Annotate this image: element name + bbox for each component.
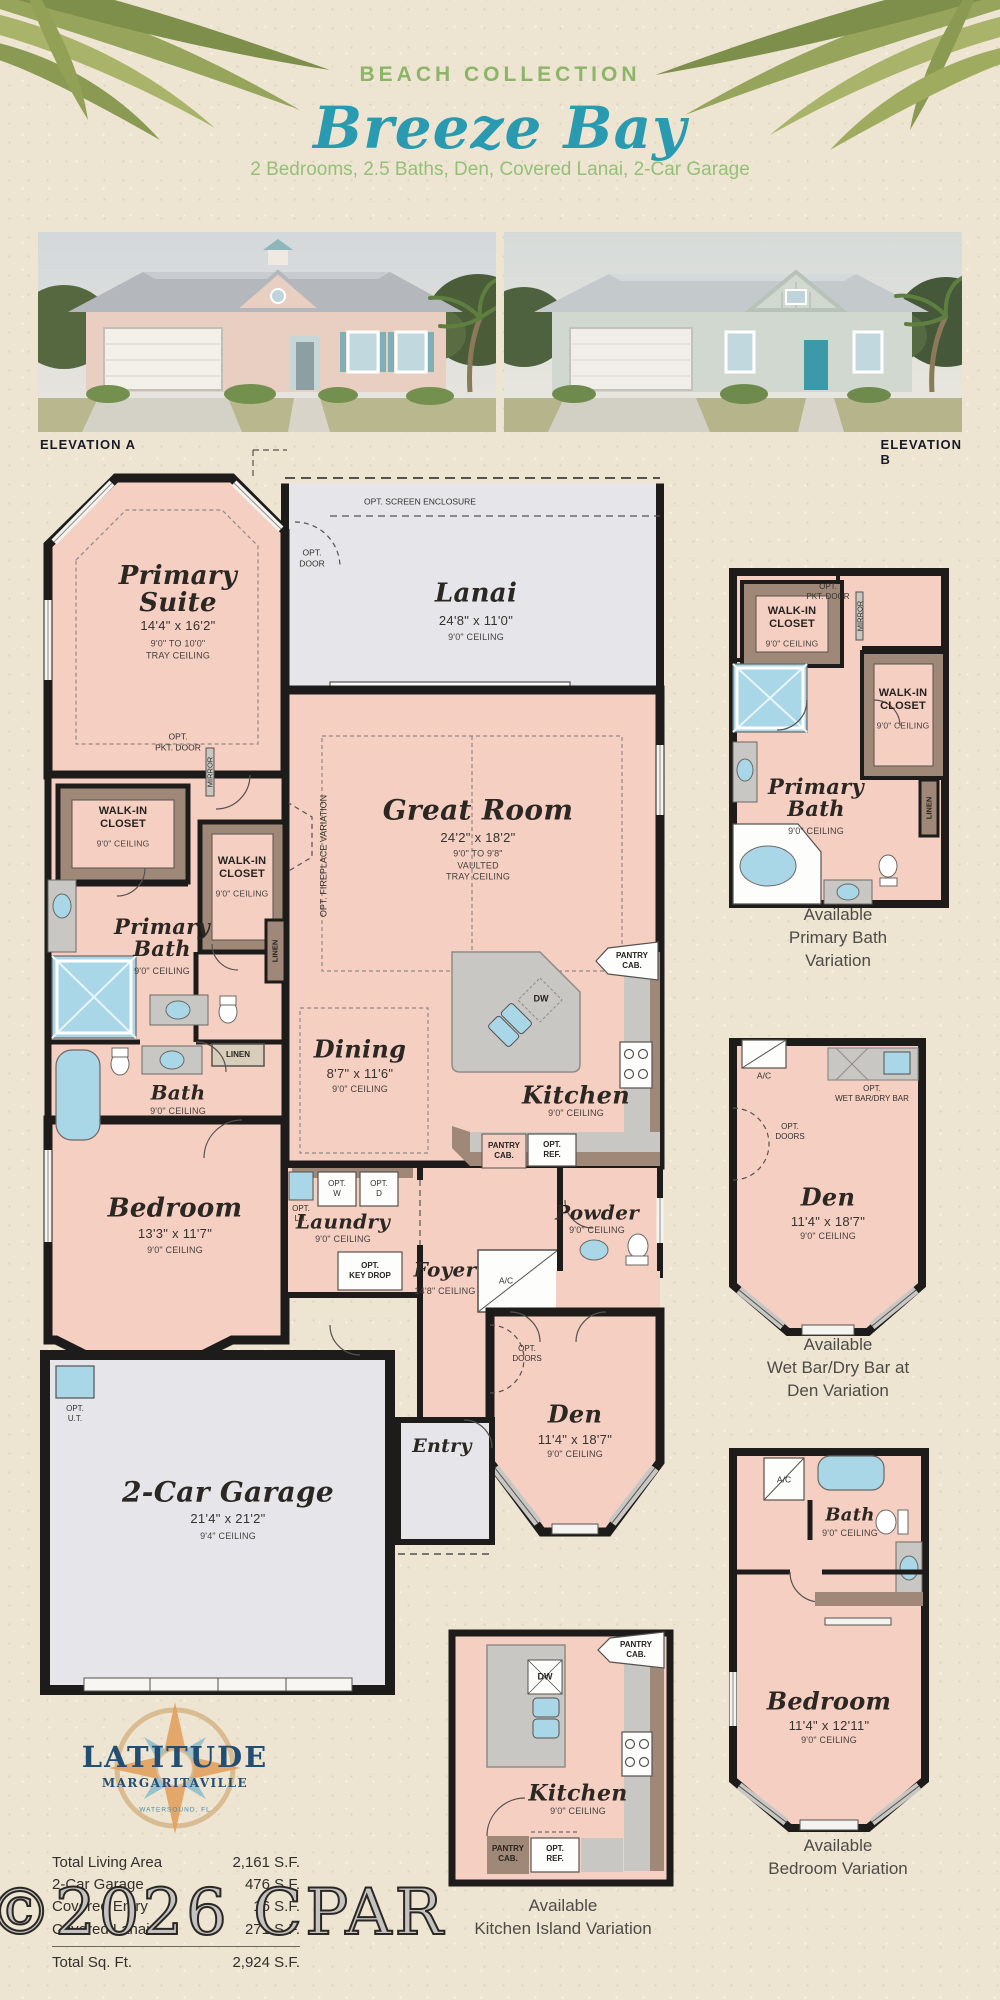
total-sqft-label: Total Sq. Ft. [52, 1952, 132, 1975]
logo-margaritaville: MARGARITAVILLE [102, 1776, 248, 1790]
logo-location: WATERSOUND, FL [139, 1807, 210, 1814]
logo-latitude: LATITUDE [82, 1740, 269, 1774]
den-variation-plan [733, 1040, 922, 1335]
flyer-page: BEACH COLLECTION Breeze Bay 2 Bedrooms, … [0, 0, 1000, 2000]
total-sqft-value: 2,924 S.F. [232, 1952, 300, 1975]
primary-bath-variation-plan [733, 572, 945, 904]
total-living-area-value: 2,161 S.F. [232, 1852, 300, 1874]
copyright-watermark: ©2026 CPAR [0, 1876, 446, 1950]
bedroom-variation-plan [733, 1452, 925, 1830]
kitchen-island-variation-plan [452, 1632, 670, 1883]
table-total-row: Total Sq. Ft. 2,924 S.F. [52, 1947, 300, 1975]
floor-plan-drawing [0, 0, 1000, 2000]
total-living-area-label: Total Living Area [52, 1852, 162, 1874]
main-floor-plan [45, 450, 665, 1691]
table-row: Total Living Area 2,161 S.F. [52, 1852, 300, 1874]
